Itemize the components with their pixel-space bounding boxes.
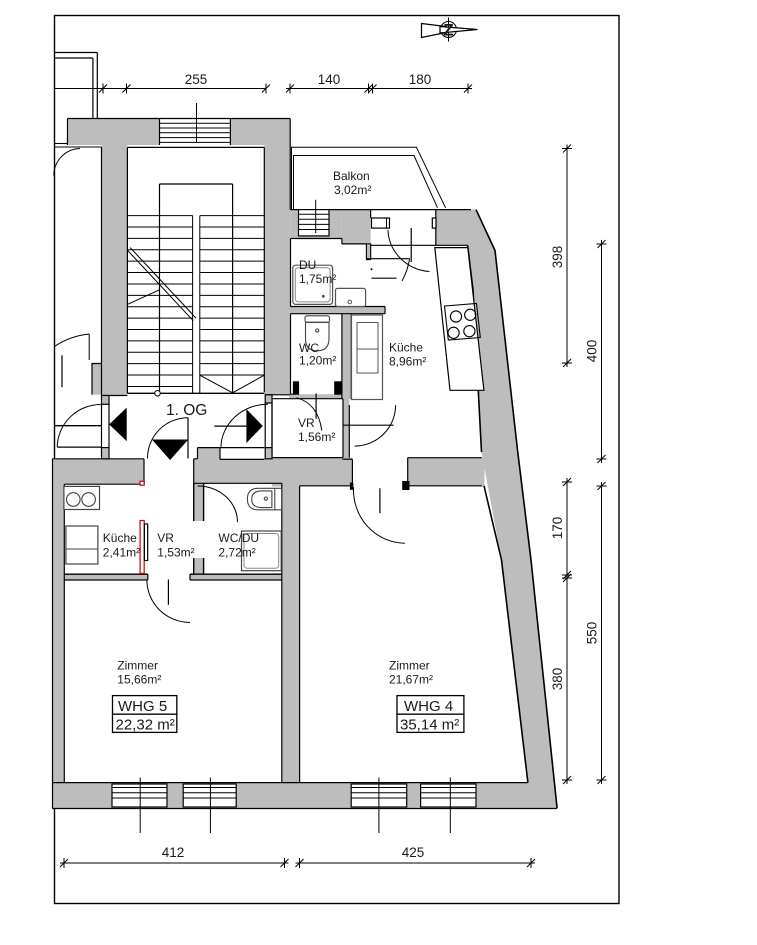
svg-text:398: 398 — [550, 246, 565, 269]
svg-text:425: 425 — [402, 845, 425, 860]
svg-text:1,20m²: 1,20m² — [299, 354, 336, 368]
svg-text:Zimmer: Zimmer — [389, 659, 430, 673]
svg-text:2,41m²: 2,41m² — [103, 546, 140, 560]
svg-text:170: 170 — [550, 517, 565, 540]
svg-text:22,32 m²: 22,32 m² — [116, 717, 175, 734]
svg-text:3,02m²: 3,02m² — [334, 183, 371, 197]
svg-text:1,53m²: 1,53m² — [157, 546, 194, 560]
svg-text:15,66m²: 15,66m² — [117, 673, 161, 687]
svg-text:35,14 m²: 35,14 m² — [400, 717, 459, 734]
svg-text:WHG 4: WHG 4 — [404, 698, 453, 715]
svg-text:380: 380 — [550, 668, 565, 691]
svg-text:Z: Z — [443, 21, 453, 40]
svg-text:1,56m²: 1,56m² — [298, 430, 335, 444]
svg-text:VR: VR — [157, 531, 174, 545]
svg-text:WHG 5: WHG 5 — [118, 698, 167, 715]
svg-text:DU: DU — [299, 258, 316, 272]
svg-text:140: 140 — [318, 72, 341, 87]
svg-text:1. OG: 1. OG — [166, 402, 207, 419]
svg-text:400: 400 — [585, 340, 600, 363]
svg-text:255: 255 — [185, 72, 208, 87]
svg-text:Küche: Küche — [389, 341, 423, 355]
svg-text:8,96m²: 8,96m² — [389, 355, 426, 369]
svg-text:550: 550 — [585, 622, 600, 645]
svg-text:WC/DU: WC/DU — [218, 531, 259, 545]
svg-text:Balkon: Balkon — [333, 169, 370, 183]
svg-text:Zimmer: Zimmer — [117, 659, 158, 673]
svg-text:21,67m²: 21,67m² — [389, 673, 433, 687]
svg-text:1,75m²: 1,75m² — [299, 272, 336, 286]
svg-text:2,72m²: 2,72m² — [218, 546, 255, 560]
svg-text:412: 412 — [162, 845, 185, 860]
svg-text:Küche: Küche — [103, 531, 137, 545]
svg-text:180: 180 — [409, 72, 432, 87]
svg-text:VR: VR — [298, 416, 315, 430]
